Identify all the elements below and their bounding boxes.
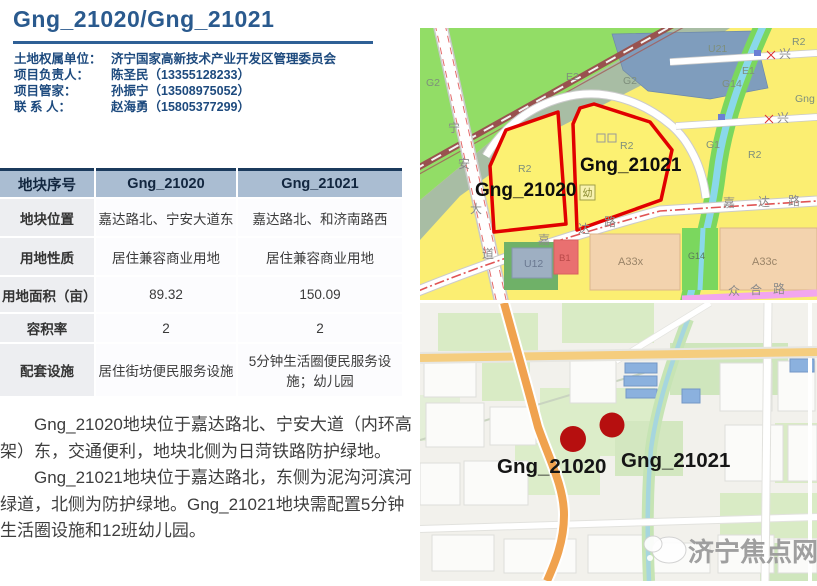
paragraph: Gng_21021地块位于嘉达路北，东侧为泥沟河滨河绿道，北侧为防护绿地。Gng… xyxy=(0,465,420,545)
row-label: 用地性质 xyxy=(0,238,94,275)
paragraph: Gng_21020地块位于嘉达路北、宁安大道（内环高架）东，交通便利，地块北侧为… xyxy=(0,412,420,465)
table-header-cell: 地块序号 xyxy=(0,168,94,197)
zone-label-g14: G14 xyxy=(722,78,742,90)
table-cell: 居住兼容商业用地 xyxy=(96,238,236,275)
page: { "header": { "title": "Gng_21020/Gng_21… xyxy=(0,0,817,581)
table-cell: 150.09 xyxy=(238,277,402,312)
contact-value: 赵海勇（15805377299） xyxy=(111,99,336,115)
zone-label-u12: U12 xyxy=(524,258,543,270)
contact-label: 联 系 人： xyxy=(14,99,111,115)
title-underline xyxy=(13,41,373,44)
watermark: 济宁焦点网 xyxy=(644,536,817,567)
contact-label: 土地权属单位： xyxy=(14,51,111,67)
road-char: 安 xyxy=(458,156,470,171)
table-cell: 2 xyxy=(96,314,236,342)
table-cell: 嘉达路北、和济南路西 xyxy=(238,199,402,236)
table-cell: 89.32 xyxy=(96,277,236,312)
row-label: 地块位置 xyxy=(0,199,94,236)
zone-label-r2: R2 xyxy=(748,149,762,161)
zone-label-r2: R2 xyxy=(620,140,634,152)
zoning-map: 幼 U21 E2 G2 G2 E1 G14 G1 Gng R2 R2 R2 R2… xyxy=(420,28,817,300)
contact-value: 济宁国家高新技术产业开发区管理委员会 xyxy=(111,51,336,67)
zone-label-g1: G1 xyxy=(706,139,720,151)
row-label: 配套设施 xyxy=(0,344,94,396)
table-cell: 嘉达路北、宁安大道东 xyxy=(96,199,236,236)
marker-label-gng21020: Gng_21020 xyxy=(497,455,606,478)
table-header-cell: Gng_21021 xyxy=(238,168,402,197)
contact-value: 陈圣民（13355128233） xyxy=(111,67,336,83)
zone-label-b1: B1 xyxy=(559,253,571,264)
watermark-text: 济宁焦点网 xyxy=(688,537,817,567)
zone-label-e2: E2 xyxy=(566,71,579,83)
road-char: 嘉 xyxy=(538,233,550,247)
description-text: Gng_21020地块位于嘉达路北、宁安大道（内环高架）东，交通便利，地块北侧为… xyxy=(0,412,420,545)
zone-label-e1: E1 xyxy=(742,65,755,77)
road-char: 达 xyxy=(758,195,770,209)
parcel-table: 地块序号 Gng_21020 Gng_21021 地块位置 嘉达路北、宁安大道东… xyxy=(0,168,398,396)
contact-info: 土地权属单位： 济宁国家高新技术产业开发区管理委员会 项目负责人： 陈圣民（13… xyxy=(14,51,336,115)
contact-value: 孙振宁（13508975052） xyxy=(111,83,336,99)
road-char: 路 xyxy=(773,281,785,296)
row-label: 容积率 xyxy=(0,314,94,342)
marker-gng21020 xyxy=(560,426,586,452)
zone-label-r2: R2 xyxy=(792,36,806,48)
road-char: 道 xyxy=(482,247,494,261)
contact-label: 项目负责人： xyxy=(14,67,111,83)
road-char: 合 xyxy=(750,282,762,297)
road-char: 大 xyxy=(470,202,482,216)
street-map: Gng_21020 Gng_21021 济宁焦点网 xyxy=(420,303,817,581)
zone-label-g14b: G14 xyxy=(688,251,705,261)
table-header-cell: Gng_21020 xyxy=(96,168,236,197)
table-cell: 居住街坊便民服务设施 xyxy=(96,344,236,396)
zone-label-a33c: A33c xyxy=(752,256,778,268)
road-char: 嘉 xyxy=(723,196,735,210)
table-cell: 居住兼容商业用地 xyxy=(238,238,402,275)
parcel-label-gng21021: Gng_21021 xyxy=(580,155,682,176)
road-char: 兴 xyxy=(777,111,789,125)
zone-label-gng: Gng xyxy=(795,93,815,105)
road-char: 达 xyxy=(578,222,590,236)
zone-label-r2: R2 xyxy=(518,163,532,175)
parcel-label-gng21020: Gng_21020 xyxy=(475,180,576,201)
zone-label-a33x: A33x xyxy=(618,256,644,268)
zone-label-g2: G2 xyxy=(623,75,637,87)
road-char: 宁 xyxy=(448,120,460,135)
table-cell: 5分钟生活圈便民服务设施；幼儿园 xyxy=(238,344,402,396)
road-char: 路 xyxy=(788,193,800,208)
page-title: Gng_21020/Gng_21021 xyxy=(13,6,274,33)
road-char: 路 xyxy=(604,214,616,229)
table-cell: 2 xyxy=(238,314,402,342)
zone-label-u21: U21 xyxy=(708,43,727,55)
kindergarten-label: 幼 xyxy=(583,187,593,200)
marker-label-gng21021: Gng_21021 xyxy=(621,449,730,472)
marker-gng21021 xyxy=(600,413,625,438)
zone-label-g2-left: G2 xyxy=(426,77,440,89)
row-label: 用地面积（亩） xyxy=(0,277,94,312)
road-char: 兴 xyxy=(779,47,791,61)
contact-label: 项目管家： xyxy=(14,83,111,99)
road-char: 众 xyxy=(728,284,740,298)
